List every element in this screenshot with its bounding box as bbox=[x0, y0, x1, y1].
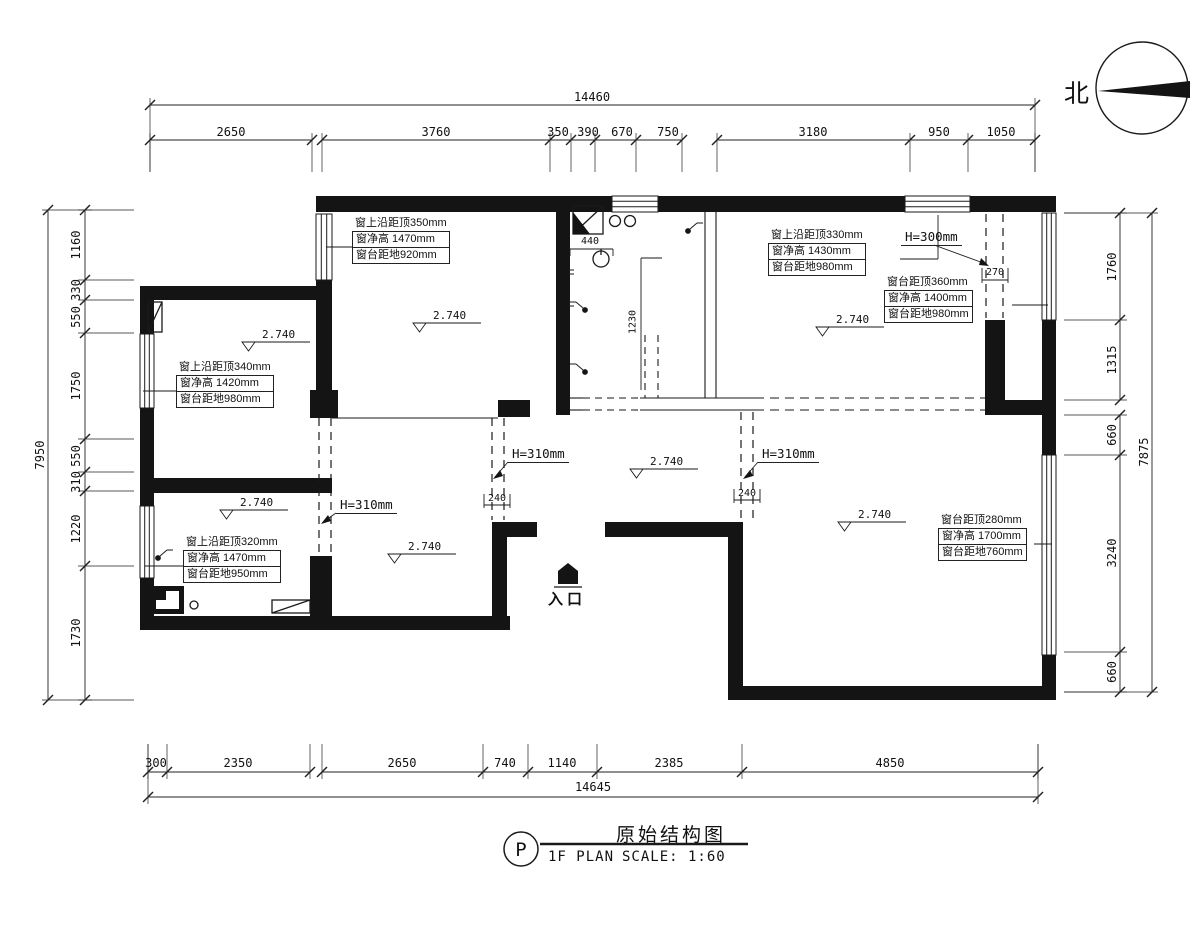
utility-marker-icon bbox=[570, 302, 587, 312]
level-mark-icon bbox=[816, 327, 884, 336]
north-compass bbox=[1096, 42, 1190, 134]
level-mark-icon bbox=[838, 522, 906, 531]
dim-label: 3760 bbox=[422, 125, 451, 139]
dim-total-right: 7875 bbox=[1137, 438, 1151, 467]
window-note-5: 窗台距顶360mm 窗净高 1400mm窗台距地980mm bbox=[884, 275, 973, 323]
dim-label: 3180 bbox=[799, 125, 828, 139]
leader-lines bbox=[143, 215, 1052, 566]
window-note-6: 窗台距顶280mm 窗净高 1700mm窗台距地760mm bbox=[938, 513, 1027, 561]
dim-label: 1760 bbox=[1105, 253, 1119, 282]
beam-height-label: H=310mm bbox=[758, 446, 819, 463]
level-label: 2.740 bbox=[408, 540, 441, 553]
level-mark-icon bbox=[630, 469, 698, 478]
window-note-1: 窗上沿距顶350mm 窗净高 1470mm窗台距地920mm bbox=[352, 216, 450, 264]
dim-label: 2650 bbox=[217, 125, 246, 139]
dim-label: 550 bbox=[69, 306, 83, 328]
dim-label: 2385 bbox=[655, 756, 684, 770]
dim-label: 1315 bbox=[1105, 346, 1119, 375]
utility-marker-icon bbox=[686, 223, 703, 233]
dim-label: 1230 bbox=[628, 310, 639, 334]
dim-label: 1750 bbox=[69, 372, 83, 401]
dim-label: 1730 bbox=[69, 619, 83, 648]
dim-label: 740 bbox=[494, 756, 516, 770]
entrance-symbol bbox=[554, 563, 582, 587]
dim-label: 310 bbox=[69, 471, 83, 493]
dim-label: 550 bbox=[69, 445, 83, 467]
level-label: 2.740 bbox=[433, 309, 466, 322]
scale-label: SCALE: 1:60 bbox=[622, 849, 726, 865]
dim-label: 440 bbox=[581, 236, 599, 247]
beam-height-label: H=310mm bbox=[508, 446, 569, 463]
dim-label: 1220 bbox=[69, 515, 83, 544]
level-label: 2.740 bbox=[650, 455, 683, 468]
utility-marker-icon bbox=[156, 550, 173, 560]
level-label: 2.740 bbox=[240, 496, 273, 509]
walls bbox=[140, 196, 1056, 700]
window-note-2: 窗上沿距顶340mm 窗净高 1420mm窗台距地980mm bbox=[176, 360, 274, 408]
floor-plan-page: 14460 2650 3760 350 390 670 750 3180 950… bbox=[0, 0, 1200, 925]
north-label: 北 bbox=[1064, 74, 1089, 110]
window-note-3: 窗上沿距顶320mm 窗净高 1470mm窗台距地950mm bbox=[183, 535, 281, 583]
dim-label: 2650 bbox=[388, 756, 417, 770]
dim-label: 300 bbox=[145, 756, 167, 770]
dim-label: 1140 bbox=[548, 756, 577, 770]
dim-label: 750 bbox=[657, 125, 679, 139]
dim-total-top: 14460 bbox=[574, 90, 610, 104]
entrance-arrow-icon bbox=[558, 563, 578, 584]
drawing-title: 原始结构图 bbox=[616, 820, 726, 847]
dim-label: 330 bbox=[69, 279, 83, 301]
level-mark-icon bbox=[388, 554, 456, 563]
windows bbox=[140, 196, 1056, 655]
dim-label: 670 bbox=[611, 125, 633, 139]
plan-ref-label: P bbox=[515, 839, 526, 861]
window-note-4: 窗上沿距顶330mm 窗净高 1430mm窗台距地980mm bbox=[768, 228, 866, 276]
sink-icon bbox=[625, 216, 636, 227]
level-mark-icon bbox=[220, 510, 288, 519]
beam-width-label: 240 bbox=[738, 488, 756, 499]
dim-label: 1050 bbox=[987, 125, 1016, 139]
entrance-label: 入口 bbox=[548, 588, 586, 609]
dim-label: 390 bbox=[577, 125, 599, 139]
beam-width-label: 270 bbox=[986, 267, 1004, 278]
beam-height-label: H=300mm bbox=[901, 229, 962, 246]
plan-level-label: 1F PLAN bbox=[548, 849, 614, 865]
utility-marker-icon bbox=[570, 364, 587, 374]
beam-width-label: 240 bbox=[488, 493, 506, 504]
north-needle-icon bbox=[1098, 81, 1190, 98]
level-mark-icon bbox=[242, 342, 310, 351]
pipe-icon bbox=[190, 601, 198, 609]
level-label: 2.740 bbox=[262, 328, 295, 341]
level-mark-icon bbox=[413, 323, 481, 332]
beam-height-label: H=310mm bbox=[336, 497, 397, 514]
sink-icon bbox=[610, 216, 621, 227]
level-label: 2.740 bbox=[858, 508, 891, 521]
dim-label: 3240 bbox=[1105, 539, 1119, 568]
level-label: 2.740 bbox=[836, 313, 869, 326]
dim-label: 1160 bbox=[69, 231, 83, 260]
dim-label: 660 bbox=[1105, 661, 1119, 683]
dim-total-bottom: 14645 bbox=[575, 780, 611, 794]
beam-dashed-lines bbox=[319, 214, 1003, 556]
dim-label: 350 bbox=[547, 125, 569, 139]
dim-total-left: 7950 bbox=[33, 441, 47, 470]
dim-label: 660 bbox=[1105, 424, 1119, 446]
dim-label: 2350 bbox=[224, 756, 253, 770]
dim-label: 4850 bbox=[876, 756, 905, 770]
dim-label: 950 bbox=[928, 125, 950, 139]
